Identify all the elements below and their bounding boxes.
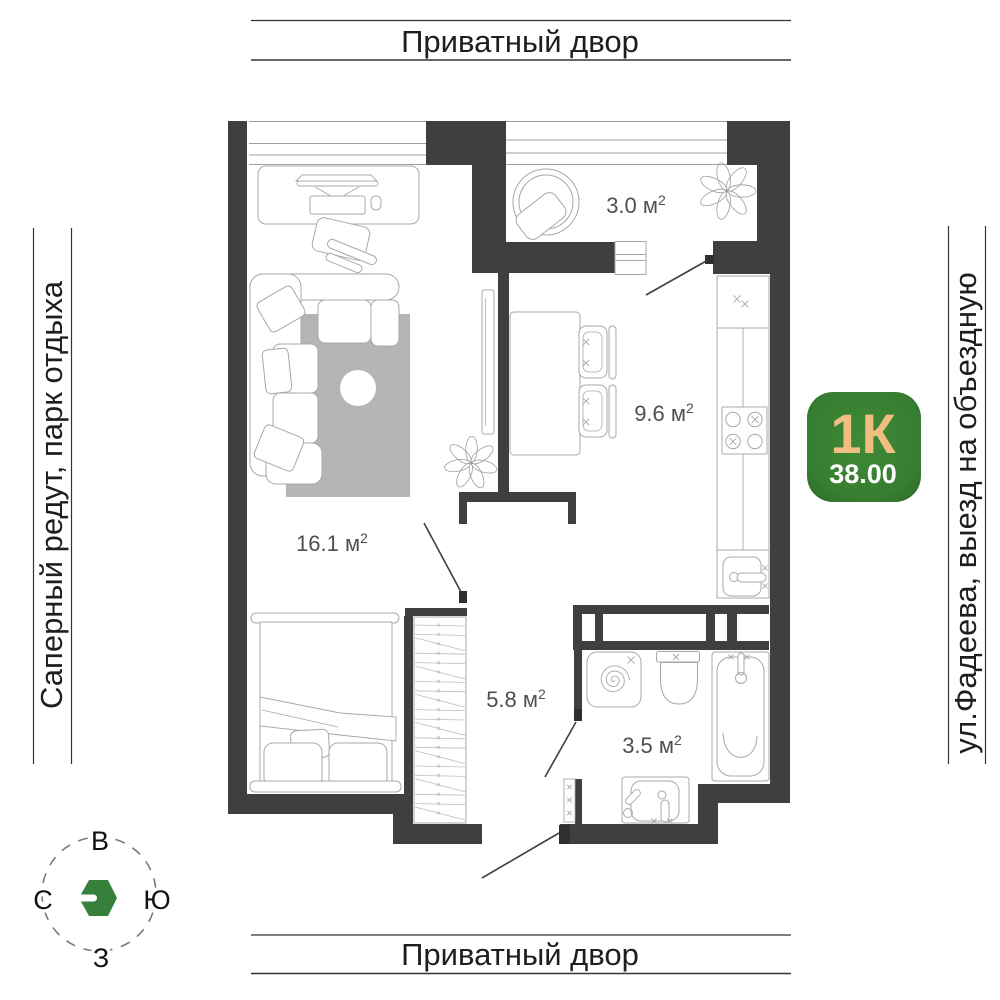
svg-text:Ю: Ю (143, 885, 170, 915)
svg-text:3.0 м2: 3.0 м2 (606, 192, 666, 218)
svg-text:1К: 1К (830, 402, 896, 465)
svg-text:Приватный двор: Приватный двор (401, 937, 639, 972)
svg-text:5.8 м2: 5.8 м2 (486, 686, 546, 712)
svg-text:Приватный двор: Приватный двор (401, 24, 639, 59)
svg-text:16.1 м2: 16.1 м2 (296, 530, 368, 556)
svg-text:В: В (91, 826, 109, 856)
svg-text:Саперный редут, парк отдыха: Саперный редут, парк отдыха (34, 280, 69, 709)
svg-text:38.00: 38.00 (829, 459, 897, 489)
svg-text:С: С (33, 885, 53, 915)
svg-text:ул.Фадеева, выезд на объездную: ул.Фадеева, выезд на объездную (948, 272, 983, 753)
svg-text:3.5 м2: 3.5 м2 (622, 732, 682, 758)
svg-text:9.6 м2: 9.6 м2 (634, 400, 694, 426)
svg-text:З: З (93, 943, 109, 973)
